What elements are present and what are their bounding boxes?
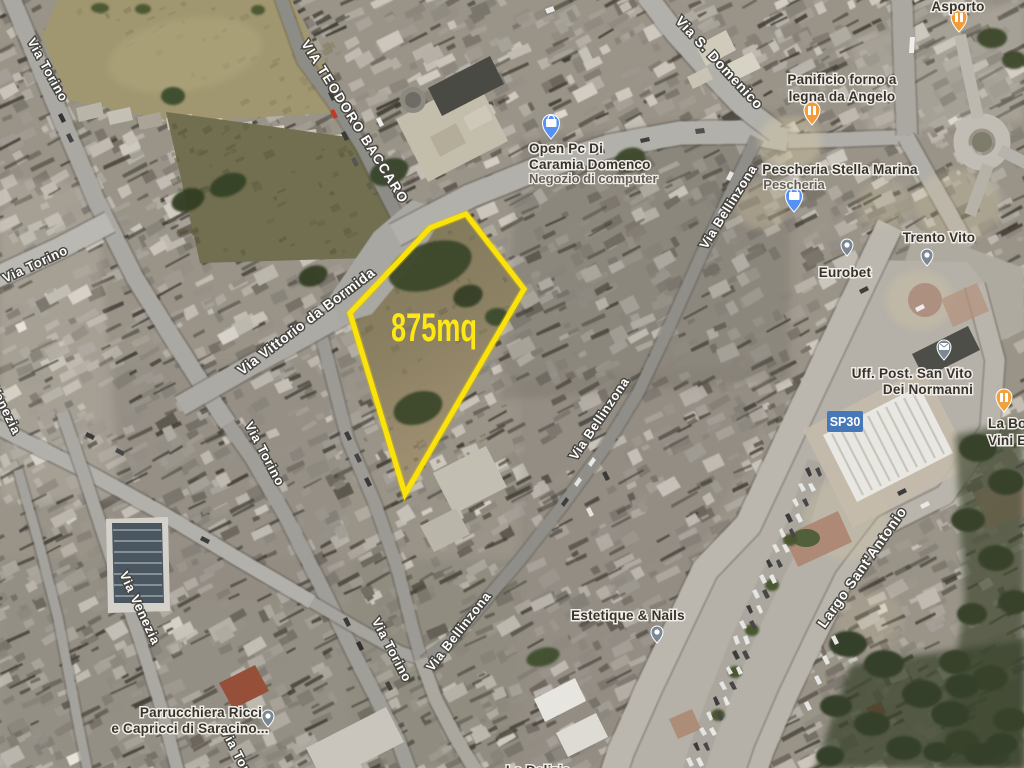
svg-text:Vini E s: Vini E s — [988, 433, 1024, 448]
svg-text:Trento Vito: Trento Vito — [903, 230, 975, 245]
svg-text:Eurobet: Eurobet — [819, 265, 872, 280]
svg-text:Caramia Domenco: Caramia Domenco — [529, 157, 651, 172]
svg-text:SP30: SP30 — [830, 415, 861, 429]
svg-text:Dei Normanni: Dei Normanni — [883, 382, 973, 397]
svg-text:Le Delizia: Le Delizia — [506, 763, 571, 768]
svg-text:Estetique & Nails: Estetique & Nails — [571, 608, 685, 623]
svg-text:Uff. Post. San Vito: Uff. Post. San Vito — [852, 366, 973, 381]
svg-text:La Bout: La Bout — [988, 416, 1024, 431]
svg-text:Asporto: Asporto — [931, 0, 984, 14]
svg-text:Parrucchiera Ricci: Parrucchiera Ricci — [140, 705, 262, 720]
svg-text:Open Pc Di: Open Pc Di — [529, 141, 603, 156]
svg-text:e Capricci di Saracino...: e Capricci di Saracino... — [111, 721, 268, 736]
svg-text:Negozio di computer: Negozio di computer — [529, 171, 658, 186]
svg-text:legna da Angelo: legna da Angelo — [789, 89, 896, 104]
svg-text:Pescheria: Pescheria — [763, 177, 825, 192]
svg-text:875mq: 875mq — [391, 306, 477, 350]
svg-text:Pescheria Stella Marina: Pescheria Stella Marina — [762, 162, 918, 177]
svg-text:Panificio forno a: Panificio forno a — [787, 72, 896, 87]
